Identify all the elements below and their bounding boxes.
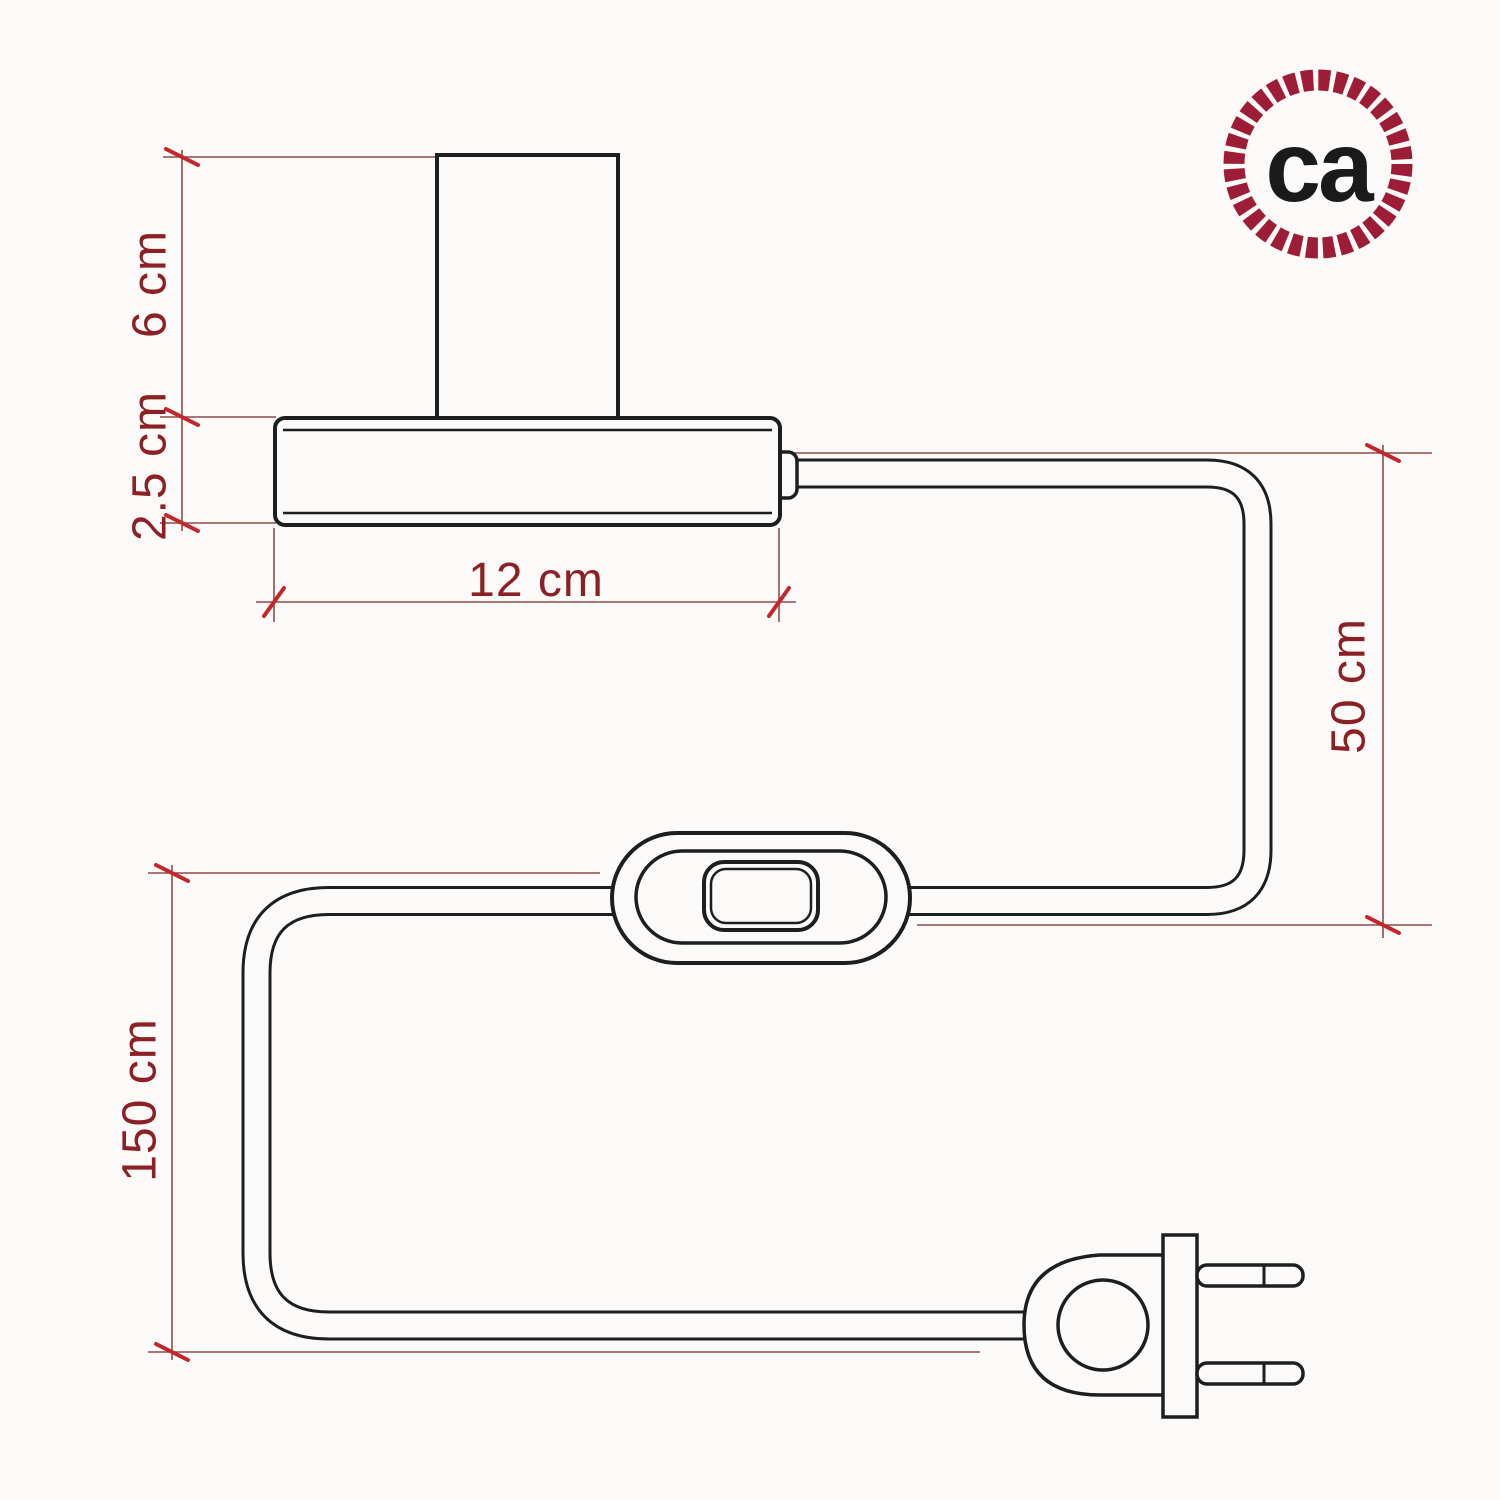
technical-drawing-page: 6 cm 2.5 cm 12 cm 50 cm 150 cm bbox=[0, 0, 1500, 1500]
plug-prong-top bbox=[1197, 1265, 1303, 1286]
dim-label-cable-150: 150 cm bbox=[114, 1018, 167, 1181]
dim-label-cable-50: 50 cm bbox=[1323, 618, 1376, 754]
dimension-ticks bbox=[156, 149, 1399, 1360]
plug-body bbox=[1024, 1255, 1166, 1395]
inline-switch bbox=[612, 833, 910, 963]
lamp-base bbox=[275, 418, 780, 525]
cable-switch-to-plug bbox=[257, 901, 1041, 1326]
dim-label-base-height: 2.5 cm bbox=[124, 391, 177, 541]
plug-prong-bottom bbox=[1197, 1363, 1303, 1384]
lamp-dimension-diagram: 6 cm 2.5 cm 12 cm 50 cm 150 cm bbox=[0, 0, 1500, 1500]
power-plug bbox=[1024, 1235, 1303, 1417]
plug-face-plate bbox=[1163, 1235, 1197, 1417]
dim-label-holder-height: 6 cm bbox=[124, 230, 177, 338]
dimension-lines bbox=[148, 150, 1432, 1360]
logo-text: ca bbox=[1265, 111, 1375, 223]
brand-logo: ca bbox=[1234, 80, 1402, 248]
lamp-holder-cylinder bbox=[437, 155, 618, 418]
dim-label-base-width: 12 cm bbox=[468, 554, 604, 607]
